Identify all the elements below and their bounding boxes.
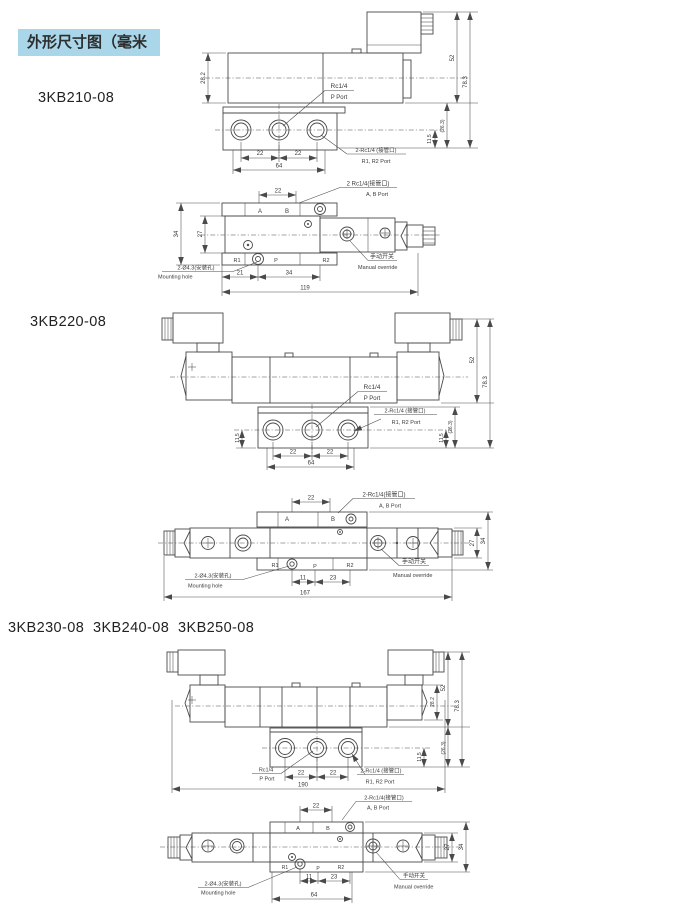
label-mount-en: Mounting hole xyxy=(188,584,223,590)
port-p: P xyxy=(313,564,317,570)
label-mount-cn: 2-Ø4.3(安装孔) xyxy=(205,880,242,888)
port-r2: R2 xyxy=(346,563,353,569)
port-r1: R1 xyxy=(271,563,278,569)
label-manual-cn: 手动开关 xyxy=(370,253,394,261)
dim-b1: 11 xyxy=(306,875,313,881)
drawing-3kb230-top: A B R1 P R2 22 27 34 11 23 xyxy=(140,793,680,921)
label-rc14: Rc1/4 xyxy=(364,384,381,391)
dim-base-width: 64 xyxy=(311,893,318,899)
dim-coil-height: 52 xyxy=(441,684,447,691)
callouts-d2t: 2-Rc1/4(接管口) A, B Port 2-Ø4.3(安装孔) Mount… xyxy=(185,491,432,590)
port-a: A xyxy=(258,209,262,215)
label-rc14: Rc1/4 xyxy=(259,768,273,774)
dim-port-height-r: 11.5 xyxy=(439,433,445,443)
dim-port-pitch-2: 22 xyxy=(330,771,337,777)
label-manual-en: Manual override xyxy=(394,885,433,891)
dim-outer-height: 34 xyxy=(174,230,180,237)
drawing-3kb230-front: 28.2 52 (26.3) 78.3 11.5 22 22 190 Rc xyxy=(140,645,680,805)
label-ab-port: A, B Port xyxy=(366,192,388,198)
port-p: P xyxy=(274,258,278,264)
dim-b2: 23 xyxy=(330,576,337,582)
dim-port-pitch-2: 22 xyxy=(295,151,302,157)
label-rc14: Rc1/4 xyxy=(331,83,348,90)
label-mount-en: Mounting hole xyxy=(158,275,193,281)
dim-body-height: 28.2 xyxy=(201,72,207,84)
port-a: A xyxy=(296,826,300,832)
dim-inner-height: 27 xyxy=(445,843,451,850)
model-label-3kb220: 3KB220-08 xyxy=(30,314,106,330)
dim-coil-height: 52 xyxy=(470,356,476,363)
dimensions-d2f: 52 78.3 (26.3) 11.5 11.5 22 22 64 xyxy=(235,319,494,470)
port-b: B xyxy=(326,826,330,832)
drawing-3kb210-front: 28.2 52 78.3 (26.3) 11.5 22 22 64 Rc1 xyxy=(150,0,680,190)
dim-base-width: 64 xyxy=(276,164,283,170)
dim-port-height: 11.5 xyxy=(427,134,433,144)
dim-base-height: (26.3) xyxy=(441,741,447,754)
section-header: 外形尺寸图（毫米 xyxy=(18,29,160,56)
dim-b1: 21 xyxy=(237,271,244,277)
label-mount-en: Mounting hole xyxy=(201,891,236,897)
valve-body xyxy=(162,313,468,403)
drawing-3kb220-front: 52 78.3 (26.3) 11.5 11.5 22 22 64 Rc1/4 … xyxy=(140,300,680,485)
port-b: B xyxy=(331,517,335,523)
label-mount-cn: 2-Ø4.3(安装孔) xyxy=(178,264,215,272)
label-r1r2-conn: 2-Rc1/4 (接管口) xyxy=(361,767,402,775)
dim-outer-height: 34 xyxy=(459,843,465,850)
label-r1r2-conn: 2-Rc1/4 (接管口) xyxy=(356,146,397,154)
page-title: 外形尺寸图（毫米 xyxy=(18,29,160,56)
port-r1: R1 xyxy=(233,258,240,264)
port-b: B xyxy=(285,209,289,215)
valve-body-top: A B R1 P R2 xyxy=(160,822,460,872)
drawing-3kb210-top: A B R1 P R2 22 34 27 21 34 xyxy=(140,178,680,305)
model-label-3kb230-240-250: 3KB230-08 3KB240-08 3KB250-08 xyxy=(8,620,254,636)
label-ab-conn: 2 Rc1/4(接管口) xyxy=(347,180,390,188)
label-ab-port: A, B Port xyxy=(379,504,401,510)
dim-port-height-l: 11.5 xyxy=(235,433,241,443)
dimensions-d1t: 22 34 27 21 34 119 xyxy=(174,189,418,297)
valve-body xyxy=(167,650,455,727)
dim-inner-height: 27 xyxy=(198,230,204,237)
dim-total-length: 190 xyxy=(298,783,309,789)
manifold xyxy=(262,726,430,772)
label-ab-conn: 2-Rc1/4(接管口) xyxy=(362,491,405,499)
label-manual-cn: 手动开关 xyxy=(403,872,426,880)
model-label-3kb210: 3KB210-08 xyxy=(38,90,114,106)
label-p-port: P Port xyxy=(331,95,348,101)
dim-coil-height: 52 xyxy=(450,54,456,61)
port-callouts-d2f: Rc1/4 P Port 2-Rc1/4 (接管口) R1, R2 Port xyxy=(316,384,437,431)
port-p: P xyxy=(316,866,320,872)
dimensions-d3t: 22 27 34 11 23 64 xyxy=(272,804,470,904)
port-callouts-d1f: Rc1/4 P Port 2-Rc1/4 (接管口) R1, R2 Port xyxy=(283,83,406,165)
dim-ab-pitch: 22 xyxy=(308,496,315,502)
dim-port-pitch-2: 22 xyxy=(327,450,334,456)
port-callouts-d3f: Rc1/4 P Port 2-Rc1/4 (接管口) R1, R2 Port xyxy=(252,751,404,786)
dim-port-pitch-1: 22 xyxy=(290,450,297,456)
label-ab-conn: 2-Rc1/4(接管口) xyxy=(364,794,404,802)
dim-port-pitch-1: 22 xyxy=(298,771,305,777)
port-r2: R2 xyxy=(322,258,329,264)
label-r1r2-conn: 2-Rc1/4 (接管口) xyxy=(385,407,426,415)
valve-body-top: A B R1 P R2 xyxy=(200,203,440,265)
dim-inner-height: 27 xyxy=(470,539,476,546)
label-mount-cn: 2-Ø4.3(安装孔) xyxy=(195,572,232,580)
port-a: A xyxy=(285,517,289,523)
dim-total-height: 78.3 xyxy=(455,700,461,712)
dim-ab-pitch: 22 xyxy=(313,804,320,810)
dim-b2: 34 xyxy=(286,271,293,277)
dim-port-height: 11.5 xyxy=(417,752,423,762)
catalog-page: 外形尺寸图（毫米 3KB210-08 3KB220-08 3KB230-08 3… xyxy=(0,0,680,921)
dim-body-height: 28.2 xyxy=(430,697,436,707)
drawing-3kb220-top: A B R1 P R2 22 27 34 11 23 xyxy=(140,480,680,615)
dim-base-height: (26.3) xyxy=(440,119,446,132)
solenoid-connector xyxy=(367,12,433,53)
label-manual-en: Manual override xyxy=(358,265,397,271)
label-r1r2-port: R1, R2 Port xyxy=(366,780,395,786)
dim-total-length: 119 xyxy=(300,286,310,292)
dim-ab-pitch: 22 xyxy=(275,189,282,195)
dim-base-width: 64 xyxy=(308,461,315,467)
dim-total-length: 167 xyxy=(300,591,311,597)
dim-port-pitch-1: 22 xyxy=(257,151,264,157)
port-r2: R2 xyxy=(338,865,345,871)
dimensions-d3f: 28.2 52 (26.3) 78.3 11.5 22 22 190 xyxy=(172,652,470,793)
label-p-port: P Port xyxy=(364,396,381,402)
label-p-port: P Port xyxy=(259,777,275,783)
label-manual-en: Manual override xyxy=(393,573,432,579)
dim-outer-height: 34 xyxy=(481,537,487,544)
port-r1: R1 xyxy=(282,865,289,871)
label-r1r2-port: R1, R2 Port xyxy=(362,159,391,165)
dim-total-height: 78.3 xyxy=(463,76,469,88)
dim-base-height: (26.3) xyxy=(448,420,454,433)
label-manual-cn: 手动开关 xyxy=(402,558,426,566)
dim-b2: 23 xyxy=(331,875,338,881)
dim-b1: 11 xyxy=(300,576,307,582)
label-r1r2-port: R1, R2 Port xyxy=(392,420,421,426)
label-ab-port: A, B Port xyxy=(367,806,389,812)
dim-total-height: 78.3 xyxy=(483,376,489,388)
